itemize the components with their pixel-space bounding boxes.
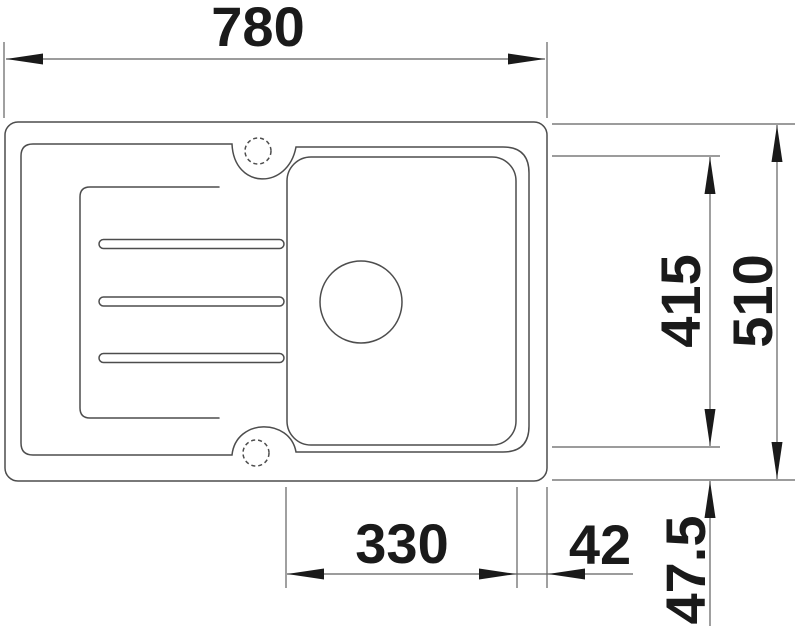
tap-hole-top xyxy=(245,138,271,164)
dim-label-bowl-width: 330 xyxy=(355,512,448,575)
technical-drawing-canvas: 780 510 415 330 42 47.5 xyxy=(0,0,800,633)
dim-label-overall-width: 780 xyxy=(211,0,304,58)
arrow-415-bottom xyxy=(705,409,716,446)
dim-label-bowl-bottom-offset: 47.5 xyxy=(654,516,717,625)
tap-hole-bottom xyxy=(243,440,269,466)
drainboard-groove-1 xyxy=(99,240,284,249)
dim-label-bowl-depth: 415 xyxy=(649,254,712,347)
arrow-330-left xyxy=(287,569,324,580)
arrow-510-bottom xyxy=(772,442,783,479)
sink-body xyxy=(5,122,547,481)
dimension-labels: 780 510 415 330 42 47.5 xyxy=(211,0,784,625)
drainboard-groove-2 xyxy=(99,297,284,306)
dim-label-overall-depth: 510 xyxy=(721,254,784,347)
dim-label-bowl-right-offset: 42 xyxy=(569,513,631,576)
arrow-330-right xyxy=(479,569,516,580)
arrow-415-top xyxy=(705,157,716,194)
drain-hole xyxy=(320,261,402,343)
drainboard-outline xyxy=(80,187,219,418)
arrow-780-left xyxy=(6,54,43,65)
arrow-47-5-up xyxy=(705,481,716,518)
drainboard-groove-3 xyxy=(99,354,284,363)
sink-dimension-drawing: 780 510 415 330 42 47.5 xyxy=(0,0,800,633)
arrow-780-right xyxy=(508,54,545,65)
arrow-510-top xyxy=(772,125,783,162)
sink-inner-rim xyxy=(21,144,529,455)
